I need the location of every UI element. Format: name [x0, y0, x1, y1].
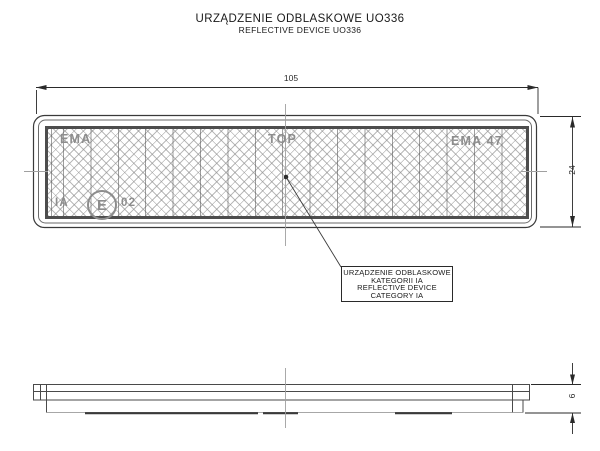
drawing-sheet: URZĄDZENIE ODBLASKOWE UO336 REFLECTIVE D…: [0, 0, 600, 451]
dimension-thickness-value: 6: [567, 385, 577, 407]
e-approval-letter: E: [97, 198, 107, 213]
drawing-title-en: REFLECTIVE DEVICE UO336: [0, 25, 600, 35]
drawing-title-pl: URZĄDZENIE ODBLASKOWE UO336: [0, 13, 600, 25]
callout-box: URZĄDZENIE ODBLASKOWE KATEGORII IA REFLE…: [341, 266, 453, 302]
face-category-mark: IA: [55, 197, 69, 209]
side-view-outline: [34, 385, 530, 413]
callout-line-4: CATEGORY IA: [343, 292, 451, 300]
dimension-width-value: 105: [276, 73, 306, 83]
face-orientation-mark: TOP: [268, 132, 297, 146]
callout-leader: [284, 175, 341, 267]
dimension-width-lines: [36, 85, 538, 114]
cad-linework: [0, 0, 600, 451]
e-approval-mark-icon: E: [87, 190, 117, 220]
face-approval-number: 02: [121, 197, 136, 209]
dimension-height-value: 24: [567, 159, 577, 181]
face-brand-right: EMA 47: [451, 134, 503, 148]
face-brand-left: EMA: [60, 132, 91, 146]
